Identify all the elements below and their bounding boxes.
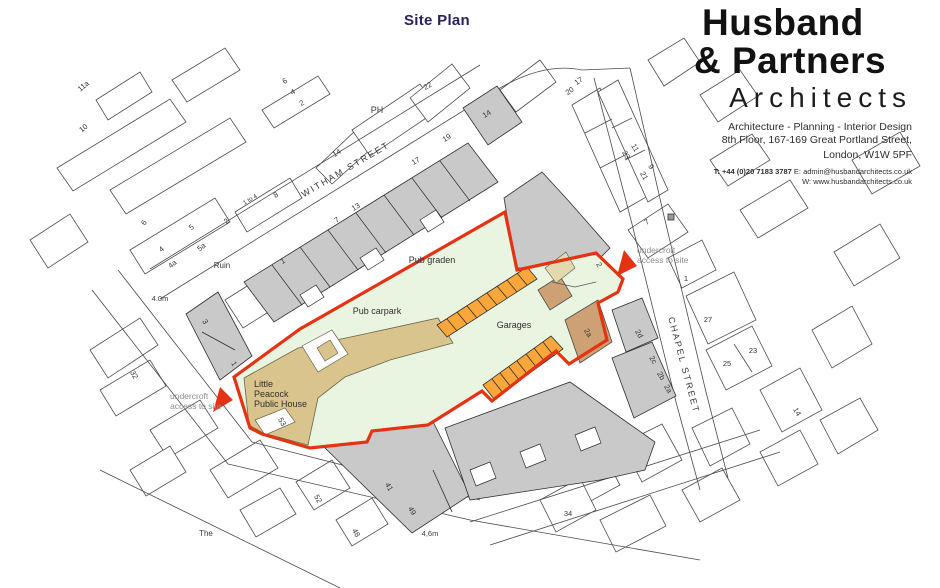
brand-name-line3: Architects bbox=[684, 82, 934, 114]
brand-address-line2: London, W1W 5PF bbox=[684, 148, 912, 163]
map-label-pub-name-2: Peacock bbox=[254, 389, 289, 399]
map-label-dim-bottom: 4,6m bbox=[422, 529, 439, 538]
access-arrow-right bbox=[617, 250, 637, 276]
map-label-n-17-terrace: 17 bbox=[410, 155, 422, 167]
map-label-n-6-top: 6 bbox=[281, 76, 289, 86]
map-label-n-1-chapel: 1 bbox=[684, 274, 688, 283]
map-label-pub-carpark: Pub carpark bbox=[353, 306, 402, 316]
map-label-chapel-street: CHAPEL STREET bbox=[666, 316, 701, 415]
map-label-ph: PH bbox=[371, 105, 384, 115]
map-label-n-19: 19 bbox=[441, 132, 453, 144]
map-label-n-25: 25 bbox=[723, 359, 731, 368]
map-label-access-right-1: undercroft bbox=[637, 245, 676, 255]
map-label-n-23-chapel: 23 bbox=[749, 346, 757, 355]
map-label-pub-garden: Pub graden bbox=[409, 255, 456, 265]
map-label-n-27: 27 bbox=[704, 315, 712, 324]
map-label-ruin: Ruin bbox=[214, 261, 230, 270]
map-label-access-left-2: access to site bbox=[170, 401, 222, 411]
map-label-the: The bbox=[199, 529, 213, 538]
map-label-access-right-2: access to site bbox=[637, 255, 689, 265]
map-label-n-10: 10 bbox=[77, 122, 89, 134]
map-label-pub-name-3: Public House bbox=[254, 399, 307, 409]
page-title: Site Plan bbox=[337, 12, 537, 29]
map-label-n-6-left: 6 bbox=[139, 218, 149, 227]
site-plan-sheet: WITHAM STREETCHAPEL STREETPub gradenPub … bbox=[0, 0, 940, 588]
brand-phone: T: +44 (0)20 7183 3787 bbox=[714, 167, 792, 176]
brand-name-line2: & Partners bbox=[684, 42, 934, 80]
brand-block: Husband & Partners Architects Architectu… bbox=[684, 4, 934, 186]
map-label-n-34: 34 bbox=[564, 509, 572, 518]
map-label-pub-name-1: Little bbox=[254, 379, 273, 389]
brand-web: W: www.husbandarchitects.co.uk bbox=[684, 177, 934, 186]
map-label-n-17-ne: 17 bbox=[573, 75, 585, 87]
map-label-access-left-1: undercroft bbox=[170, 391, 209, 401]
map-label-n-20: 20 bbox=[564, 85, 576, 97]
building-2c-2b-2a bbox=[612, 342, 676, 418]
map-label-garages: Garages bbox=[497, 320, 532, 330]
small-outbuilding bbox=[668, 214, 674, 220]
brand-address-line1: 8th Floor, 167-169 Great Portland Street… bbox=[684, 133, 912, 148]
map-label-dim-left: 4.0m bbox=[152, 294, 169, 303]
map-label-n-11a: 11a bbox=[76, 78, 92, 93]
brand-contact-line: T: +44 (0)20 7183 3787 E: admin@husbanda… bbox=[684, 167, 934, 176]
map-label-n-7-terrace: 7 bbox=[333, 215, 341, 225]
brand-tagline: Architecture - Planning - Interior Desig… bbox=[684, 121, 934, 133]
brand-email: E: admin@husbandarchitects.co.uk bbox=[792, 167, 912, 176]
brand-name-line1: Husband bbox=[684, 4, 934, 42]
